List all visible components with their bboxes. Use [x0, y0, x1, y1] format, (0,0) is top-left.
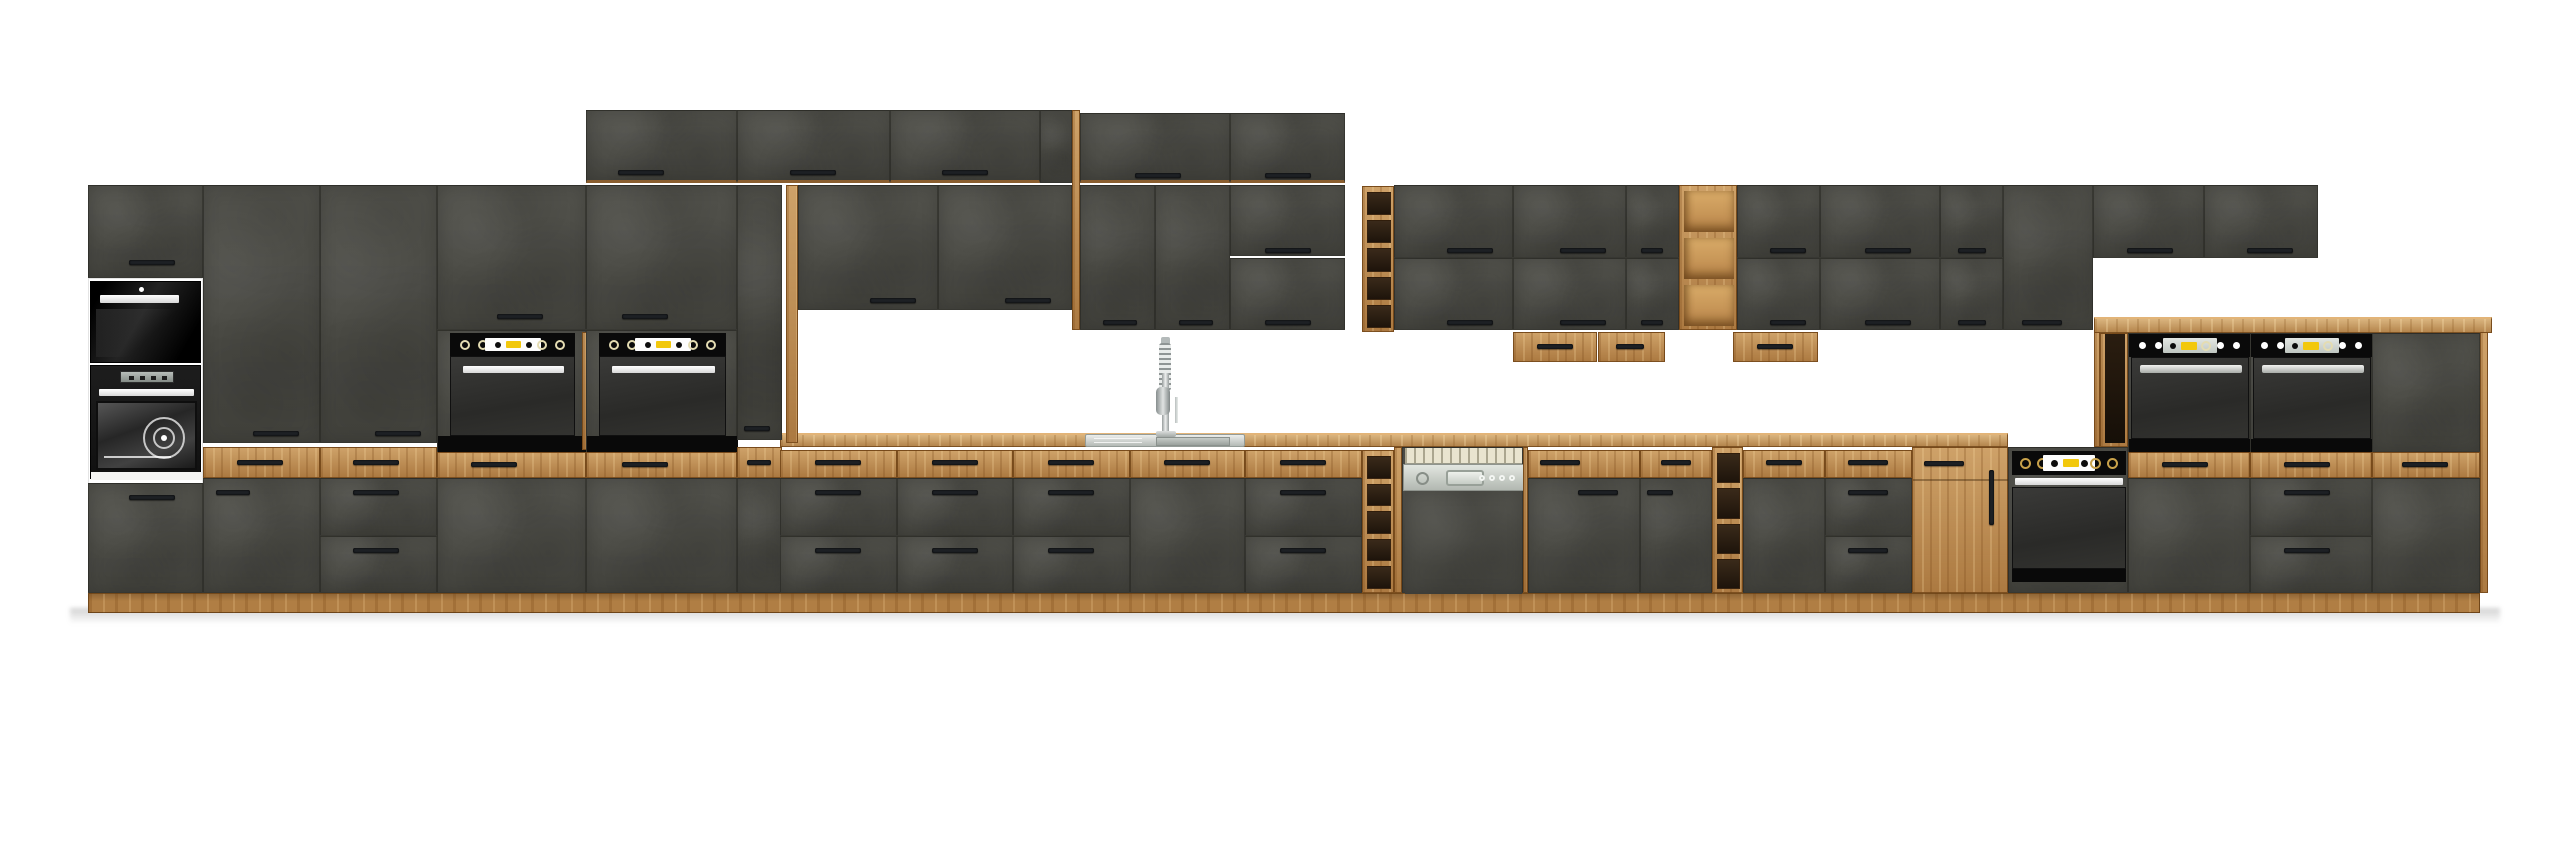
drainboard-groove [1094, 442, 1142, 443]
top-box-6-handle[interactable] [1265, 173, 1311, 178]
oven-tower-2-oak-drawer-handle[interactable] [622, 462, 668, 467]
oven-display [2285, 338, 2339, 353]
narrow-base-front[interactable] [737, 478, 782, 593]
oven-display [2043, 455, 2095, 471]
base-cab-a-oak-drawer-handle[interactable] [1540, 460, 1580, 465]
oak-tall-cabinet-handle[interactable] [1924, 461, 1964, 466]
microwave-handle-bar[interactable] [100, 295, 179, 303]
drawer-unit-1-mid[interactable] [780, 478, 897, 536]
drainboard-groove [1094, 438, 1142, 439]
base-cab-c-door[interactable] [1743, 478, 1825, 593]
drawer-unit-1-low[interactable] [780, 536, 897, 593]
oven-knob[interactable] [688, 340, 698, 350]
base-drawer-left-b-handle[interactable] [353, 548, 399, 553]
top-box-1-handle[interactable] [618, 170, 664, 175]
tall-door-2[interactable] [320, 185, 437, 443]
wall-door-i2-handle[interactable] [2247, 248, 2293, 253]
dishwasher-handle-recess[interactable] [1446, 470, 1484, 486]
panel-seam [1913, 479, 2009, 481]
niche-interior [2105, 334, 2125, 443]
oven-tower-2-door-handle[interactable] [622, 314, 668, 319]
base-open-shelf-column [1712, 447, 1743, 593]
oven-door-handle[interactable] [463, 366, 564, 373]
oven-knob[interactable] [609, 340, 619, 350]
oven-display [485, 338, 541, 351]
right-col1-door[interactable] [2128, 478, 2250, 593]
right-col3-door[interactable] [2372, 478, 2480, 593]
right-col2-drawer-b-handle[interactable] [2284, 548, 2330, 553]
wall-door-e2[interactable] [1155, 185, 1230, 330]
tall-door-1[interactable] [203, 185, 320, 443]
oven-handle-bar[interactable] [99, 389, 194, 396]
oven-control-panel[interactable] [2012, 451, 2126, 475]
dishwasher-button[interactable] [1509, 475, 1515, 481]
open-shelf-cell [1684, 191, 1734, 232]
display-screen [656, 341, 671, 348]
wall-door-h1b-handle[interactable] [1865, 320, 1911, 325]
display-dot [2292, 343, 2298, 349]
tall-door-1-handle[interactable] [253, 431, 299, 436]
sink-basin [1156, 437, 1230, 446]
right-col2-drawer-a[interactable] [2250, 478, 2372, 536]
oven-shelf-line [104, 456, 171, 458]
wine-rack-cell [1367, 248, 1391, 271]
drawer-unit-4-low[interactable] [1245, 536, 1362, 593]
display-dot [495, 342, 501, 348]
top-box-5-handle[interactable] [1135, 173, 1181, 178]
oven-bottom-trim [2251, 439, 2373, 453]
sink-base-door[interactable] [1130, 478, 1245, 593]
base-cab-b-oak-drawer-handle[interactable] [1661, 460, 1691, 465]
oven-button[interactable] [2261, 342, 2268, 349]
display-screen [2063, 459, 2079, 467]
wine-rack-cell [1367, 511, 1391, 534]
right-col2-oak-drawer-handle[interactable] [2284, 462, 2330, 467]
wall-door-e3[interactable] [1230, 185, 1345, 256]
base-drawer-left-a-handle[interactable] [353, 490, 399, 495]
wall-door-d1-handle[interactable] [870, 298, 916, 303]
wall-door-h2a-handle[interactable] [1958, 248, 1986, 253]
tall-door-2-handle[interactable] [375, 431, 421, 436]
oven-display [120, 371, 174, 383]
drawer-unit-3-low-handle[interactable] [1048, 548, 1094, 553]
oven-knob[interactable] [460, 340, 470, 350]
oven-knob[interactable] [2020, 458, 2031, 469]
oven-control-panel[interactable] [450, 333, 575, 356]
narrow-oak-drawer-handle[interactable] [747, 460, 771, 465]
oven-bottom-trim [2129, 439, 2251, 453]
wall-door-h1a-handle[interactable] [1865, 248, 1911, 253]
top-box-3-handle[interactable] [942, 170, 988, 175]
wine-rack-cell [1367, 192, 1391, 215]
oven-tower-1-door[interactable] [437, 185, 586, 330]
drawer-unit-1-oak-handle[interactable] [815, 460, 861, 465]
oven-control-panel[interactable] [2251, 334, 2373, 357]
drawer-unit-4-mid-handle[interactable] [1280, 490, 1326, 495]
base-drawer-left-b[interactable] [320, 536, 437, 593]
right-col3-oak-drawer-handle[interactable] [2402, 462, 2448, 467]
oven-knob[interactable] [2090, 458, 2101, 469]
oven-door-glass [96, 401, 197, 470]
oak-tall-cabinet[interactable] [1912, 447, 2008, 593]
oven-handle-bar[interactable] [2015, 478, 2123, 485]
right-unit-upper-door[interactable] [2372, 333, 2480, 452]
right-oven-2[interactable] [2250, 333, 2372, 452]
drawer-unit-2-oak-handle[interactable] [932, 460, 978, 465]
dishwasher-button[interactable] [1479, 475, 1485, 481]
oven-tower-1-door-handle[interactable] [497, 314, 543, 319]
display-screen [506, 341, 521, 348]
wine-rack-cell [1367, 566, 1391, 589]
dishwasher-button[interactable] [1499, 475, 1505, 481]
oak-edge-mid-block [1072, 110, 1080, 330]
drawer-unit-3-mid[interactable] [1013, 478, 1130, 536]
drawer-unit-4-oak-handle[interactable] [1280, 460, 1326, 465]
microwave-glass [96, 309, 197, 357]
display-dot [2051, 460, 2058, 467]
dishwasher-dial[interactable] [1416, 472, 1429, 485]
narrow-tall-door[interactable] [737, 185, 782, 440]
drawer-unit-5-mid[interactable] [1825, 478, 1912, 536]
oven-bottom-trim [2012, 569, 2126, 582]
right-unit-side-left [2094, 332, 2100, 447]
wall-wine-rack [1362, 186, 1394, 332]
drawer-unit-1-mid-handle[interactable] [815, 490, 861, 495]
microwave-indicator-light [139, 287, 144, 292]
drawer-unit-3-mid-handle[interactable] [1048, 490, 1094, 495]
drawer-unit-5-mid-handle[interactable] [1848, 490, 1888, 495]
right-unit-side-right [2480, 332, 2488, 593]
wall-door-e3-handle[interactable] [1265, 248, 1311, 253]
right-col2-drawer-a-handle[interactable] [2284, 490, 2330, 495]
under-cabinet-box-2-handle[interactable] [1616, 344, 1644, 349]
oven-tower-1[interactable] [437, 330, 586, 452]
wall-door-e4-handle[interactable] [1265, 320, 1311, 325]
wine-rack-cell [1367, 456, 1391, 479]
dishwasher-button[interactable] [1489, 475, 1495, 481]
microwave[interactable] [90, 281, 201, 363]
wall-door-g2b-handle[interactable] [1560, 320, 1606, 325]
wall-door-h2b-handle[interactable] [1958, 320, 1986, 325]
wall-door-e1-handle[interactable] [1103, 320, 1137, 325]
dishwasher-open-top [1405, 448, 1522, 464]
drawer-unit-2-low[interactable] [897, 536, 1013, 593]
display-dot [2170, 343, 2176, 349]
oven-door-handle[interactable] [612, 366, 715, 373]
left-column-top-door-handle[interactable] [129, 260, 175, 265]
oven-bottom-trim [587, 436, 738, 453]
base-cab-a-door[interactable] [1528, 478, 1640, 593]
sink-base-oak-drawer-handle[interactable] [1164, 460, 1210, 465]
oven-display [2163, 338, 2217, 353]
wall-door-i1-handle[interactable] [2127, 248, 2173, 253]
oak-filler-left-of-dishwasher [1394, 447, 1402, 593]
wine-rack-cell [1367, 220, 1391, 243]
right-unit-top-slab [2094, 317, 2492, 333]
drawer-unit-4-mid[interactable] [1245, 478, 1362, 536]
wine-rack-cell [1717, 453, 1740, 483]
dishwasher[interactable] [1402, 447, 1523, 593]
open-shelf-cell [1684, 238, 1734, 279]
wine-rack-cell [1717, 559, 1740, 589]
base-door-left-handle[interactable] [216, 490, 250, 495]
oak-tall-cabinet-vertical-handle[interactable] [1989, 470, 1994, 525]
right-col2-drawer-b[interactable] [2250, 536, 2372, 593]
drawer-unit-3-low[interactable] [1013, 536, 1130, 593]
oven-button[interactable] [2277, 342, 2284, 349]
oven-button[interactable] [2217, 342, 2224, 349]
base-wine-rack [1362, 450, 1394, 593]
display-segment [162, 376, 167, 380]
oven-knob[interactable] [706, 340, 716, 350]
faucet[interactable] [1145, 337, 1187, 437]
dishwasher-panel [1405, 491, 1522, 594]
left-column-bottom-drawer-handle[interactable] [129, 495, 175, 500]
base-cab-b-door[interactable] [1640, 478, 1712, 593]
display-dot [676, 342, 682, 348]
oven-knob[interactable] [537, 340, 547, 350]
drawer-unit-4-low-handle[interactable] [1280, 548, 1326, 553]
wall-door-g1b-handle[interactable] [1447, 320, 1493, 325]
oven-knob[interactable] [2107, 458, 2118, 469]
wall-door-h3[interactable] [2003, 185, 2093, 330]
display-dot [2081, 460, 2088, 467]
wall-door-g3a-handle[interactable] [1641, 248, 1663, 253]
display-knob[interactable] [2323, 341, 2333, 351]
wine-rack-cell [1367, 305, 1391, 328]
oven-tower-2-base[interactable] [586, 478, 737, 593]
wall-open-shelf [1679, 185, 1737, 330]
oven-door[interactable] [2253, 357, 2371, 439]
oak-divider [786, 185, 798, 443]
oven-door[interactable] [599, 356, 726, 436]
drawer-unit-2-mid[interactable] [897, 478, 1013, 536]
display-dot [526, 342, 532, 348]
open-shelf-cell [1684, 285, 1734, 326]
display-segment [151, 376, 156, 380]
wall-door-g1a-handle[interactable] [1447, 248, 1493, 253]
wine-rack-cell [1367, 539, 1391, 562]
wine-rack-cell [1717, 488, 1740, 518]
base-cab-a-door-handle[interactable] [1578, 490, 1618, 495]
drawer-unit-5-oak-handle[interactable] [1848, 460, 1888, 465]
right-oven-1[interactable] [2128, 333, 2250, 452]
wall-door-h3-handle[interactable] [2022, 320, 2062, 325]
base-cab-c-oak-drawer-handle[interactable] [1766, 460, 1802, 465]
drawer-unit-3-oak-handle[interactable] [1048, 460, 1094, 465]
oven-door[interactable] [450, 356, 575, 436]
oven-door[interactable] [2012, 487, 2126, 569]
oven-button[interactable] [2355, 342, 2362, 349]
wall-door-g3b-handle[interactable] [1641, 320, 1663, 325]
base-drawer-left-a[interactable] [320, 478, 437, 536]
oven-door-handle[interactable] [2140, 365, 2242, 373]
oven-control-panel[interactable] [599, 333, 726, 356]
oven-tower-2-door[interactable] [586, 185, 737, 330]
dishwasher-control-panel[interactable] [1403, 464, 1524, 491]
base-cab-b-door-handle[interactable] [1647, 490, 1673, 495]
drawer-unit-1-low-handle[interactable] [815, 548, 861, 553]
plinth [88, 593, 2480, 613]
oven-button[interactable] [2233, 342, 2240, 349]
kitchen-set-render [0, 0, 2560, 848]
wall-door-e1[interactable] [1080, 185, 1155, 330]
under-cabinet-box-1-handle[interactable] [1537, 344, 1573, 349]
right-col1-oak-drawer-handle[interactable] [2162, 462, 2208, 467]
oven-button[interactable] [2139, 342, 2146, 349]
oven-bottom-trim [438, 436, 587, 453]
wine-rack-cell [1367, 277, 1391, 300]
oak-drawer-left-1-handle[interactable] [237, 460, 283, 465]
wall-door-d2[interactable] [938, 185, 1072, 310]
oven-base-unit[interactable] [2008, 447, 2128, 593]
display-segment [129, 376, 134, 380]
display-dot [645, 342, 651, 348]
drawer-unit-2-mid-handle[interactable] [932, 490, 978, 495]
oven-button[interactable] [2155, 342, 2162, 349]
oven-tower-1-oak-drawer-handle[interactable] [471, 462, 517, 467]
oven-tower-2[interactable] [586, 330, 737, 452]
oven-display [635, 338, 691, 351]
wall-door-d2-handle[interactable] [1005, 298, 1051, 303]
oven-knob[interactable] [555, 340, 565, 350]
wall-door-g4b-handle[interactable] [1770, 320, 1806, 325]
oven-control-panel[interactable] [2129, 334, 2251, 357]
wine-rack-cell [1717, 524, 1740, 554]
top-box-4[interactable] [1040, 110, 1072, 183]
countertop [780, 433, 2008, 447]
display-knob[interactable] [2201, 341, 2211, 351]
narrow-tall-door-handle[interactable] [744, 426, 770, 431]
faucet-lever[interactable] [1175, 397, 1178, 423]
wall-door-e2-handle[interactable] [1179, 320, 1213, 325]
under-cabinet-box-3-handle[interactable] [1757, 344, 1793, 349]
top-box-2-handle[interactable] [790, 170, 836, 175]
oak-drawer-left-2-handle[interactable] [353, 460, 399, 465]
faucet-base [1156, 431, 1176, 437]
base-door-left[interactable] [203, 478, 320, 593]
oven-fan-hub [161, 435, 167, 441]
faucet-spray-head[interactable] [1156, 387, 1170, 415]
display-segment [140, 376, 145, 380]
oven-base-strip [91, 472, 202, 480]
oven-door[interactable] [2131, 357, 2249, 439]
drawer-unit-2-low-handle[interactable] [932, 548, 978, 553]
oven-button[interactable] [2339, 342, 2346, 349]
display-screen [2181, 342, 2197, 350]
wall-door-g4a-handle[interactable] [1770, 248, 1806, 253]
display-screen [2303, 342, 2319, 350]
wine-rack-cell [1367, 484, 1391, 507]
oven-door-handle[interactable] [2262, 365, 2364, 373]
oven-left-column[interactable] [90, 365, 201, 479]
wall-door-d1[interactable] [798, 185, 938, 310]
left-column-bottom-drawer[interactable] [88, 483, 203, 593]
drawer-unit-5-low[interactable] [1825, 536, 1912, 593]
oven-tower-1-base[interactable] [437, 478, 586, 593]
wall-door-g2a-handle[interactable] [1560, 248, 1606, 253]
drawer-unit-5-low-handle[interactable] [1848, 548, 1888, 553]
right-unit-open-niche [2100, 333, 2128, 447]
